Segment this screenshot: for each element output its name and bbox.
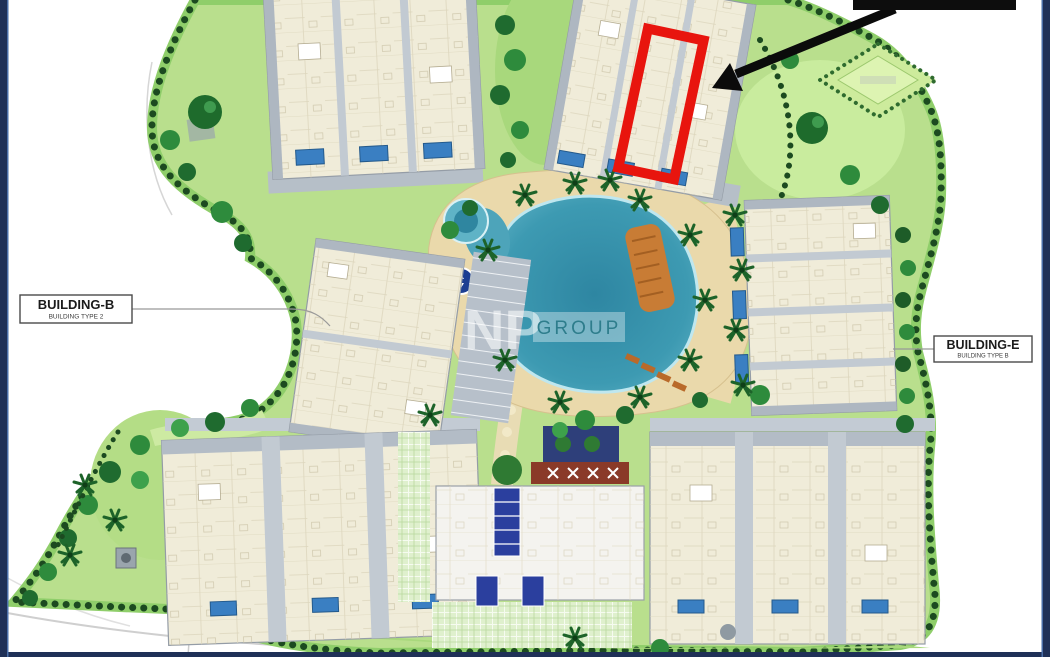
building-e-subtitle: BUILDING TYPE B [957, 354, 1008, 360]
site-plan-image: NP GROUP BUILDING-B BUILDING TYPE 2 BUIL… [0, 0, 1050, 657]
reflecting-pool [494, 488, 520, 556]
masterplan-canvas: NP GROUP BUILDING-B BUILDING TYPE 2 BUIL… [0, 0, 1050, 657]
building-b-subtitle: BUILDING TYPE 2 [49, 314, 104, 321]
building-b-title: BUILDING-B [38, 297, 115, 312]
pergola-south [432, 602, 632, 648]
site-fixture [720, 624, 736, 640]
watermark-primary: NP [464, 298, 542, 361]
pergola-west [398, 432, 430, 602]
courtyard-tree [492, 455, 522, 485]
building-e-title: BUILDING-E [947, 338, 1020, 352]
building-bottom-right [650, 432, 925, 644]
building-top-left [263, 0, 485, 179]
redacted-label-bar [853, 0, 1016, 10]
watermark-secondary: GROUP [537, 318, 622, 339]
